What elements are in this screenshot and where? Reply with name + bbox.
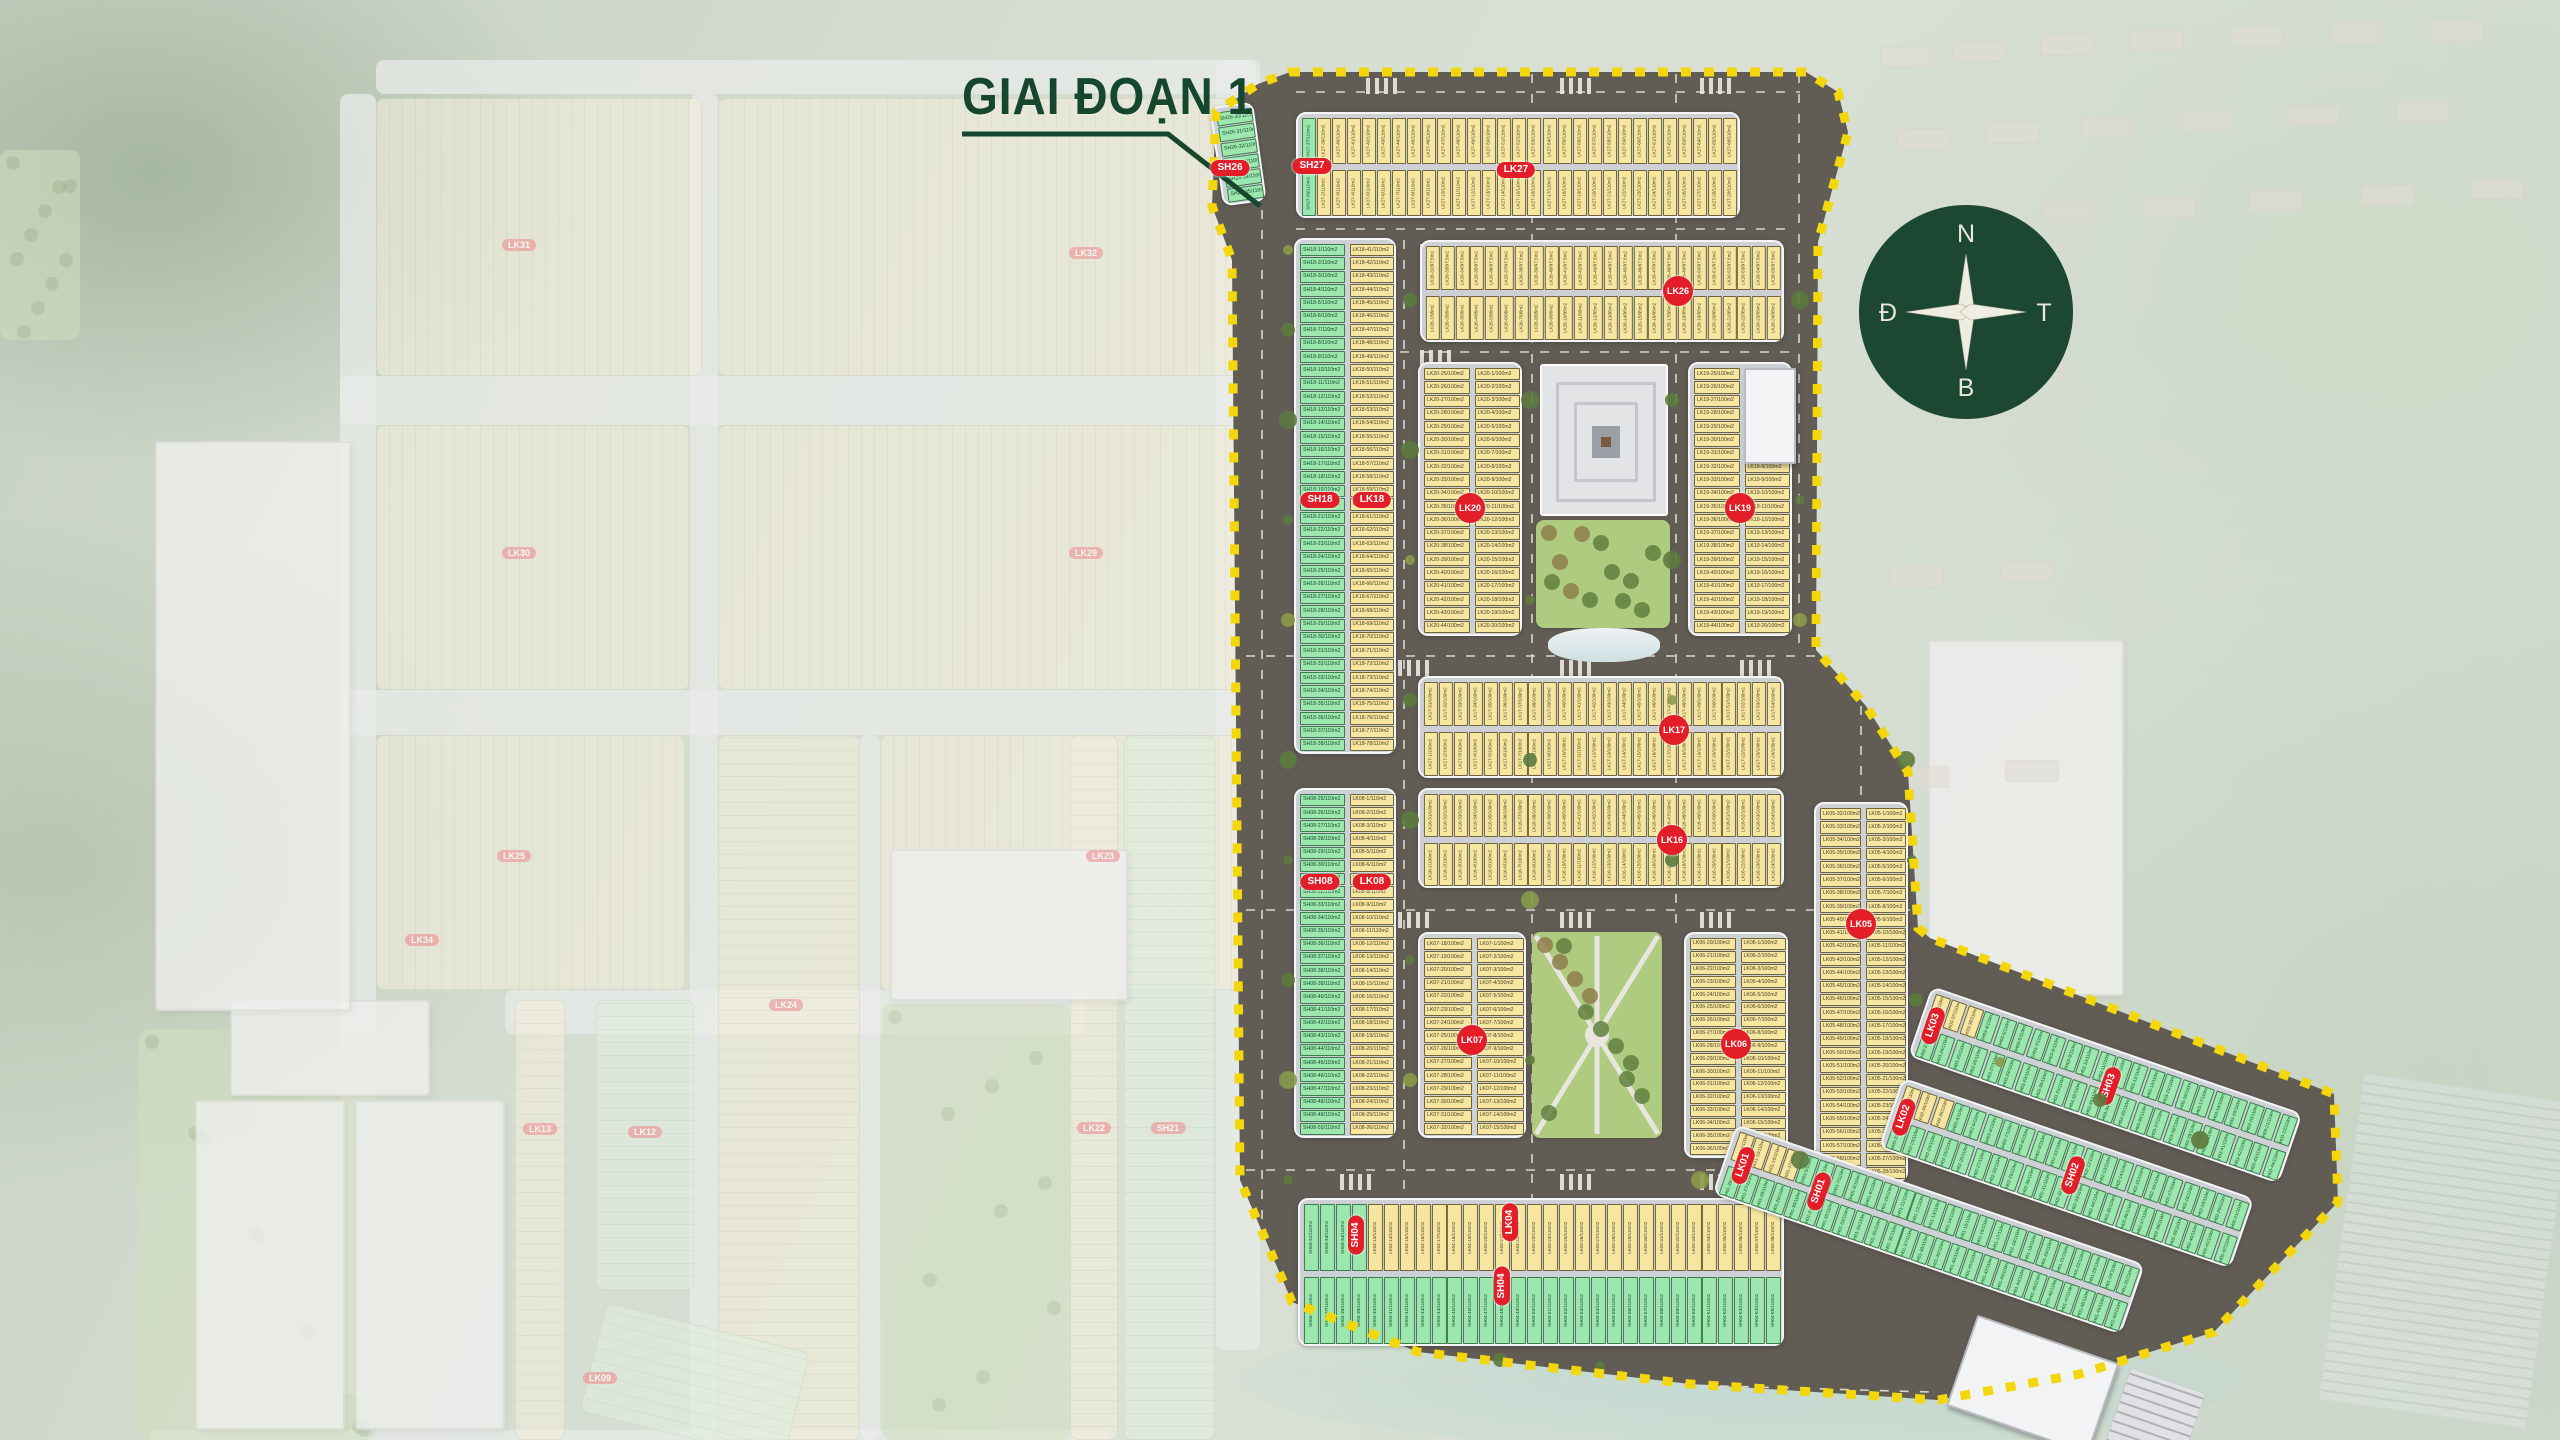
badge-SH18: SH18 [1300, 492, 1339, 508]
badge-SH04: SH04 [1348, 1215, 1364, 1254]
badge-LK17: LK17 [1659, 715, 1689, 745]
compass-north-label: N [1957, 220, 1975, 248]
badge-LK05: LK05 [1846, 909, 1876, 939]
badge-SH27: SH27 [1292, 158, 1331, 174]
badge-LK07: LK07 [1457, 1025, 1487, 1055]
badge-LK08: LK08 [1353, 874, 1391, 890]
badge-LK06: LK06 [1721, 1029, 1751, 1059]
badge-LK20: LK20 [1455, 493, 1485, 523]
badge-LK04: LK04 [1502, 1203, 1518, 1241]
compass-east-label: T [2036, 299, 2051, 327]
badge-SH04: SH04 [1494, 1266, 1510, 1305]
badge-SH26: SH26 [1210, 160, 1249, 176]
compass-south-label: B [1958, 374, 1975, 402]
masterplan-screenshot: LK31LK32LK30LK29LK25LK23LK24LK22SH21LK34… [0, 0, 2560, 1440]
badge-LK18: LK18 [1353, 492, 1391, 508]
badge-LK26: LK26 [1663, 276, 1693, 306]
badge-LK27: LK27 [1497, 162, 1535, 178]
compass-west-label: Đ [1879, 299, 1897, 327]
compass-rose: N T B Đ [0, 0, 2560, 1440]
badge-LK16: LK16 [1657, 825, 1687, 855]
badge-LK19: LK19 [1725, 493, 1755, 523]
badge-SH08: SH08 [1300, 874, 1339, 890]
